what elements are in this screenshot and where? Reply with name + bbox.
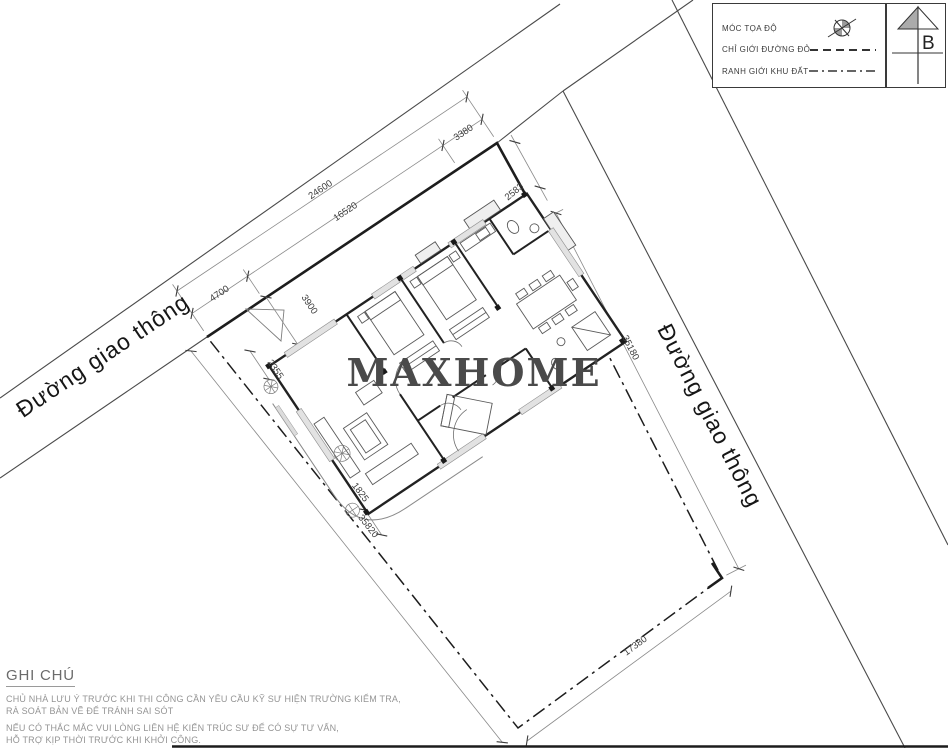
- legend-label-survey-marker: MÓC TỌA ĐỘ: [722, 24, 777, 33]
- dim-frontage-mid: 16520: [332, 200, 360, 224]
- north-arrow-icon: [887, 4, 944, 86]
- road-label-right: Đường giao thông: [652, 319, 768, 511]
- dim-setback-front: 3900: [299, 293, 320, 317]
- legend-label-red-line: CHỈ GIỚI ĐƯỜNG ĐỎ: [722, 45, 810, 54]
- dim-frontage-left: 4700: [208, 283, 232, 304]
- notes-line-3: NẾU CÓ THẮC MẮC VUI LÒNG LIÊN HỆ KIẾN TR…: [6, 722, 406, 734]
- dim-frontage-total: 24600: [307, 178, 335, 202]
- survey-marker-icon: [808, 15, 876, 41]
- dash-dot-line-icon: [809, 67, 876, 75]
- notes-line-1: CHỦ NHÀ LƯU Ý TRƯỚC KHI THI CÔNG CẦN YÊU…: [6, 693, 406, 705]
- legend-row-survey-marker: MÓC TỌA ĐỘ: [722, 18, 876, 38]
- notes-line-4: HỖ TRỢ KỊP THỜI TRƯỚC KHI KHỞI CÔNG.: [6, 734, 406, 746]
- notes-title: GHI CHÚ: [6, 667, 75, 687]
- notes-block: GHI CHÚ CHỦ NHÀ LƯU Ý TRƯỚC KHI THI CÔNG…: [6, 667, 406, 747]
- notes-line-2: RÀ SOÁT BẢN VẼ ĐỂ TRÁNH SAI SÓT: [6, 705, 406, 717]
- dim-boundary-right: 35180: [619, 334, 641, 363]
- site-plan-canvas: MAXHOME 24600 16520 4700 3380 2583 3900 …: [0, 0, 948, 748]
- north-label: B: [922, 33, 935, 55]
- legend-label-site-boundary: RANH GIỚI KHU ĐẤT: [722, 67, 809, 76]
- legend: MÓC TỌA ĐỘ CHỈ GIỚI ĐƯỜNG ĐỎ RANH GIỚI K…: [712, 3, 886, 88]
- site-plan-drawing: MAXHOME 24600 16520 4700 3380 2583 3900 …: [0, 0, 948, 748]
- watermark-text: MAXHOME: [346, 350, 601, 395]
- road-label-left: Đường giao thông: [11, 288, 194, 422]
- legend-row-site-boundary: RANH GIỚI KHU ĐẤT: [722, 61, 876, 81]
- dashed-line-icon: [810, 46, 876, 54]
- legend-row-red-line: CHỈ GIỚI ĐƯỜNG ĐỎ: [722, 40, 876, 60]
- entrance-triangle-marker: [246, 309, 284, 341]
- dim-boundary-left: 35820: [355, 513, 380, 541]
- north-indicator: B: [886, 3, 946, 88]
